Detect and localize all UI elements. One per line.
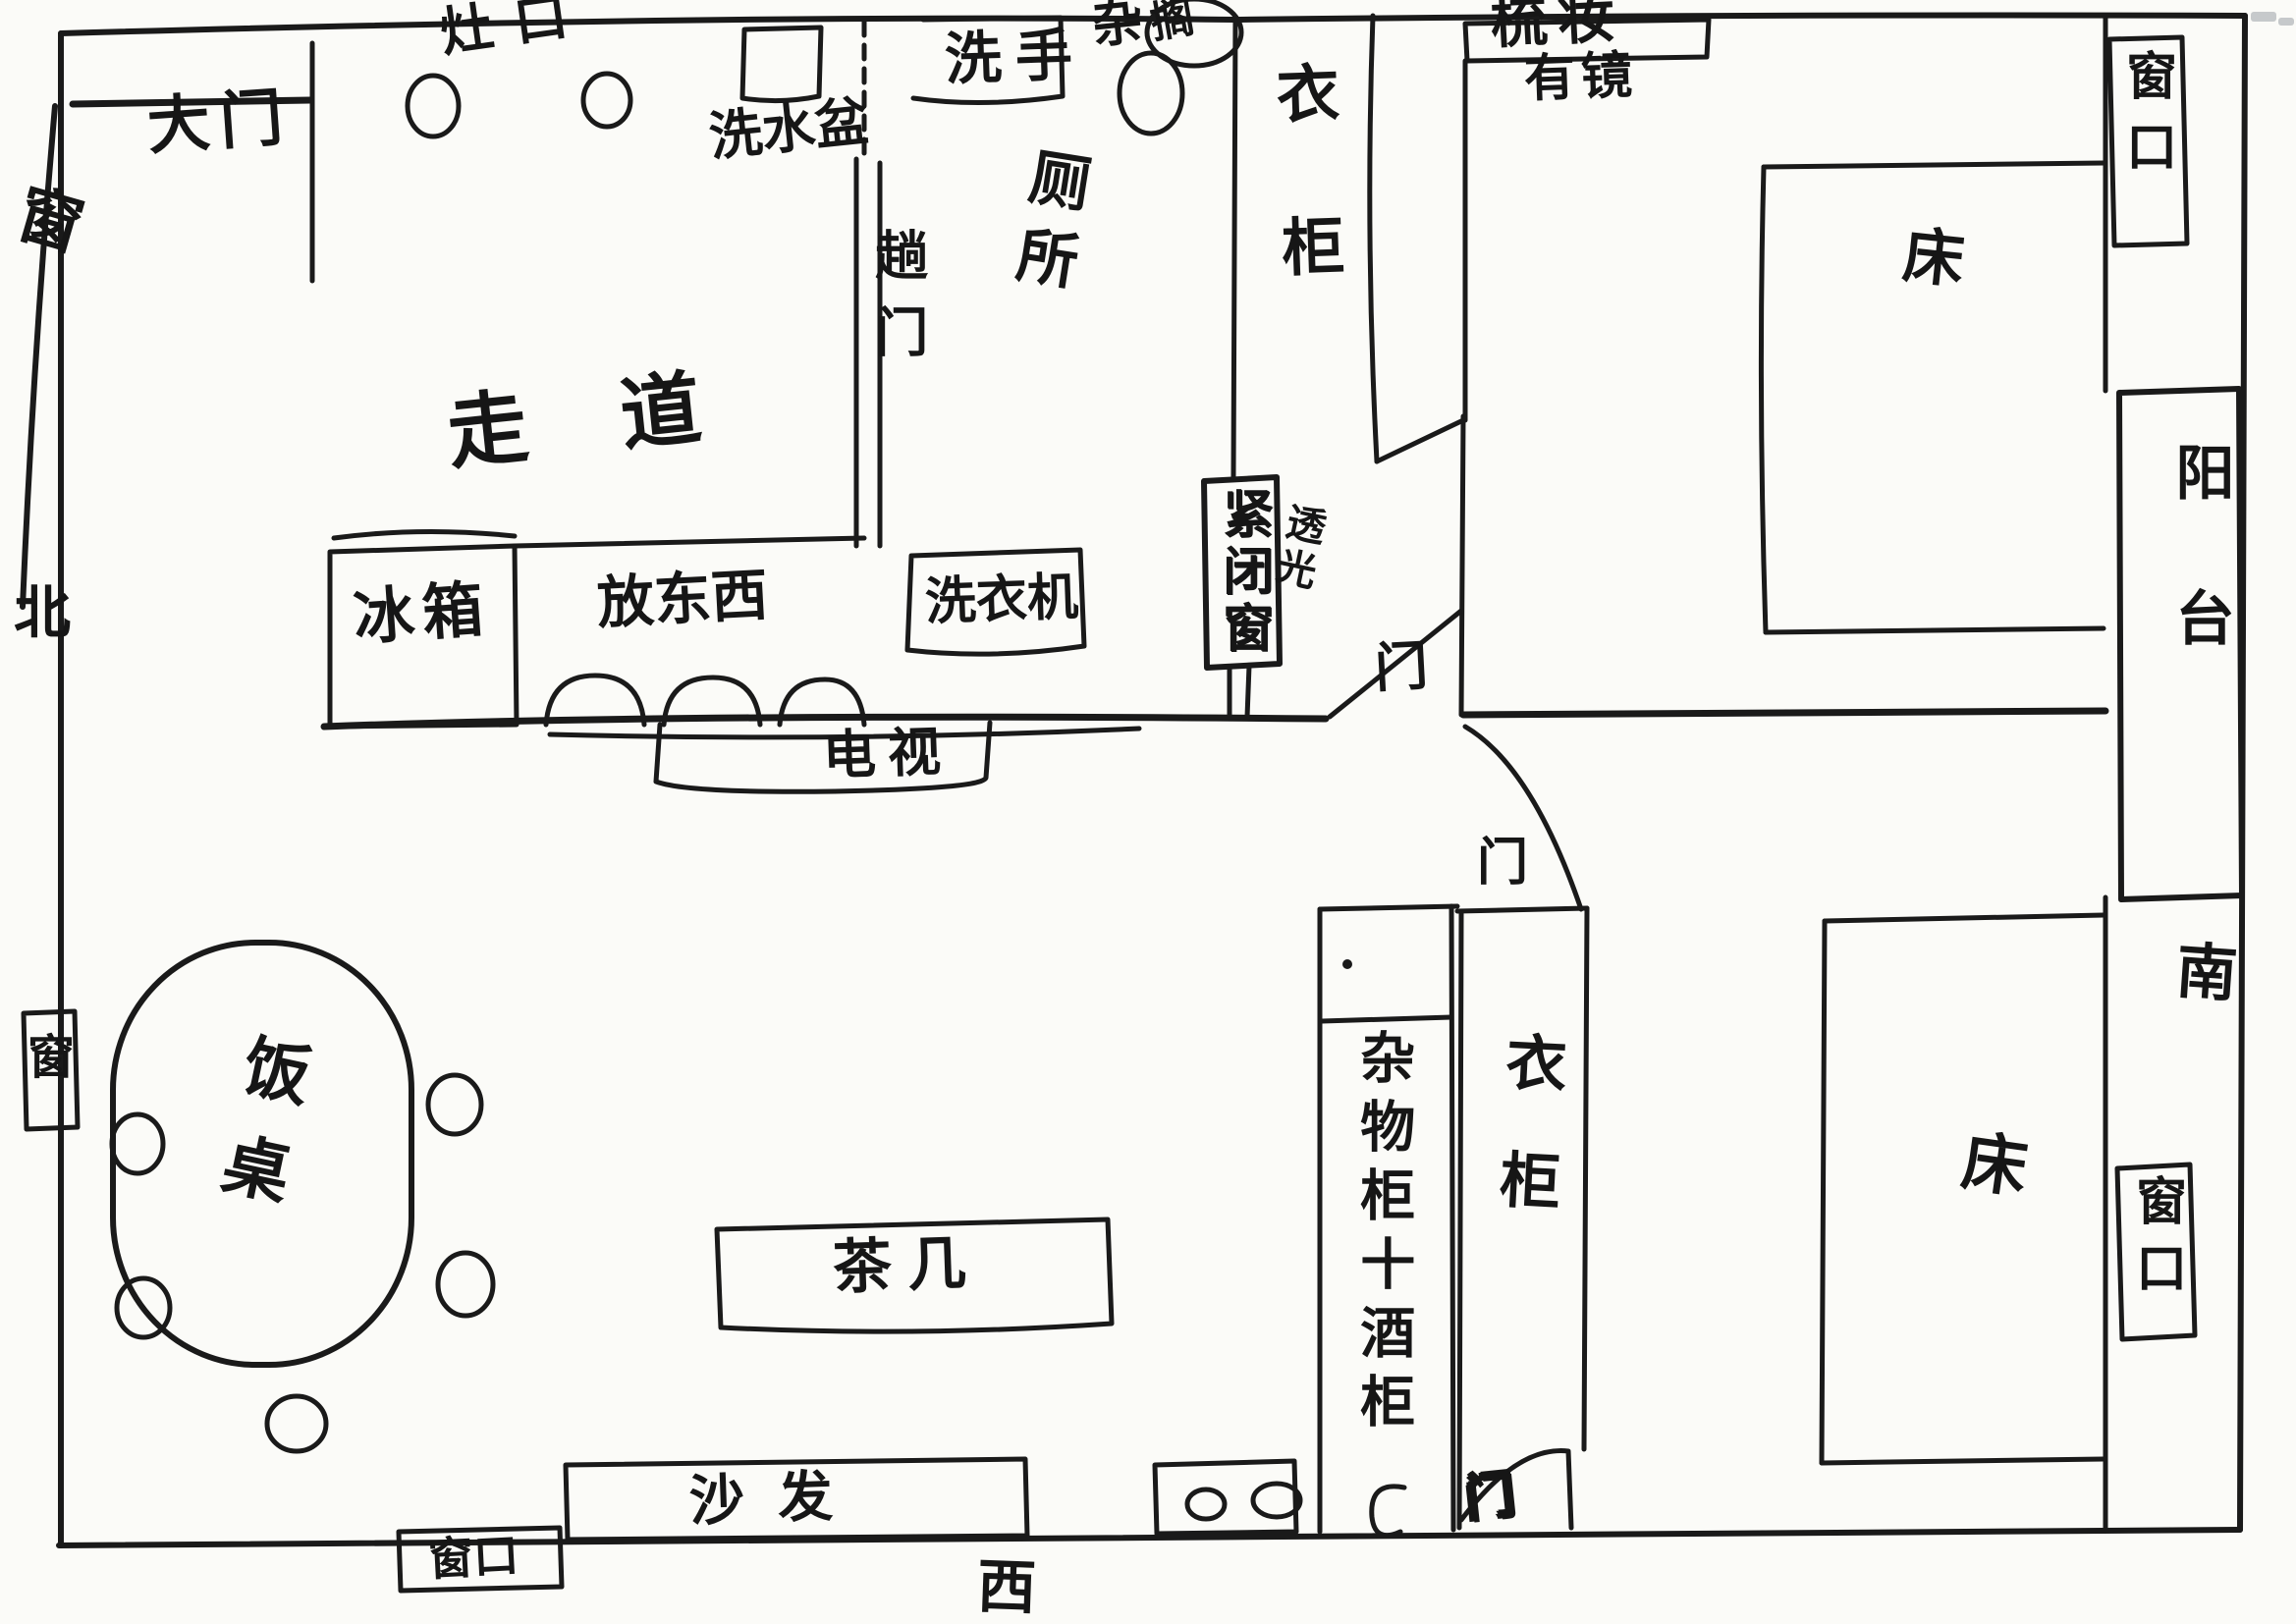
west-label: 西 xyxy=(976,1556,1037,1620)
bed2-left xyxy=(1822,921,1825,1463)
bed1-bottom xyxy=(1766,628,2104,632)
cabinet-label: 杂物柜十酒柜 xyxy=(1353,1029,1411,1441)
main-door-label: 大门 xyxy=(145,85,295,161)
counter-storage-label: 放东西 xyxy=(596,565,770,633)
toilet-bowl xyxy=(1120,53,1182,134)
wardrobe-bottom-label: 衣柜 xyxy=(1489,1029,1565,1268)
south-label: 南 xyxy=(2174,939,2239,1006)
bed2-bottom xyxy=(1822,1459,2104,1463)
window-left-lower-label: 窗 xyxy=(27,1033,75,1082)
shoe-box-circle-1 xyxy=(1187,1489,1225,1519)
dresser-label: 梳妆 xyxy=(1489,0,1625,53)
cabinet-scribble-circle xyxy=(1372,1487,1404,1536)
bedroom-top-shapes xyxy=(1330,16,2104,717)
cabinet-top xyxy=(1320,906,1457,909)
window-bottom-left-label: 窗口 xyxy=(427,1532,519,1584)
bed1-label: 床 xyxy=(1900,223,1967,293)
stool-3 xyxy=(428,1075,481,1134)
dresser-note-label: 有镜 xyxy=(1523,49,1639,107)
misc-shelf-circled: 搁 xyxy=(1139,0,1206,54)
door2-label: 门 xyxy=(1477,837,1528,891)
cabinet-right xyxy=(1451,906,1453,1530)
misc-shelf-prefix: 杂 xyxy=(1089,0,1146,56)
window-lower-right-label: 窗口 xyxy=(2129,1174,2183,1308)
stool-4 xyxy=(438,1253,493,1316)
scan-artifact-2 xyxy=(2278,18,2294,26)
wardrobe2-right-wall xyxy=(1584,908,1587,1449)
wardrobe2-left-wall xyxy=(1459,913,1461,1528)
balcony-label: 阳台 xyxy=(2168,442,2230,732)
shoe-box xyxy=(1155,1461,1296,1534)
wardrobe-top-label: 衣柜 xyxy=(1268,60,1344,368)
door1-label: 门 xyxy=(1374,639,1430,697)
cabinet-divider xyxy=(1322,1017,1451,1021)
bed1-left xyxy=(1761,167,1766,632)
hand-wash-label: 洗手 xyxy=(944,26,1087,90)
stove-burner-2 xyxy=(583,74,630,127)
corridor-wall xyxy=(324,711,2105,737)
wash-basin-square xyxy=(742,27,821,101)
door2-sill xyxy=(1457,908,1587,911)
ink-dot xyxy=(1342,959,1352,969)
bed2-top xyxy=(1825,915,2104,921)
scan-artifact-1 xyxy=(2251,12,2276,22)
stool-5 xyxy=(267,1396,326,1451)
counter-mid-top xyxy=(515,538,864,546)
sofa-label: 沙发 xyxy=(688,1468,867,1532)
sliding-door-label: 趟门 xyxy=(868,228,924,381)
tv-label: 电视 xyxy=(822,725,954,785)
sealed-window-label: 紧闭窗 xyxy=(1216,487,1270,658)
door-jamb xyxy=(1461,416,1463,715)
bed1-top xyxy=(1764,163,2104,167)
counter-top-wavy xyxy=(334,531,515,538)
washing-machine-label: 洗衣机 xyxy=(924,570,1079,629)
wardrobe-right-line xyxy=(1370,16,1377,461)
stove-burner-1 xyxy=(408,76,459,136)
tea-table-label: 茶几 xyxy=(832,1232,983,1299)
window-top-right-label: 窗口 xyxy=(2119,49,2173,190)
closet-door-label: 门 xyxy=(1462,1469,1516,1525)
door-connector xyxy=(1377,420,1463,461)
floorplan-sketch: 大门 灶口 洗水盆 洗手 杂搁 厕所 趟门 走道 冰箱 放东西 洗衣机 紧闭窗 … xyxy=(0,0,2296,1624)
bed2-label: 床 xyxy=(1957,1127,2031,1204)
stool-1 xyxy=(112,1114,163,1173)
north-label: 北 xyxy=(14,583,71,643)
fridge-label: 冰箱 xyxy=(352,576,493,650)
bathroom-right-wall xyxy=(1233,20,1235,477)
